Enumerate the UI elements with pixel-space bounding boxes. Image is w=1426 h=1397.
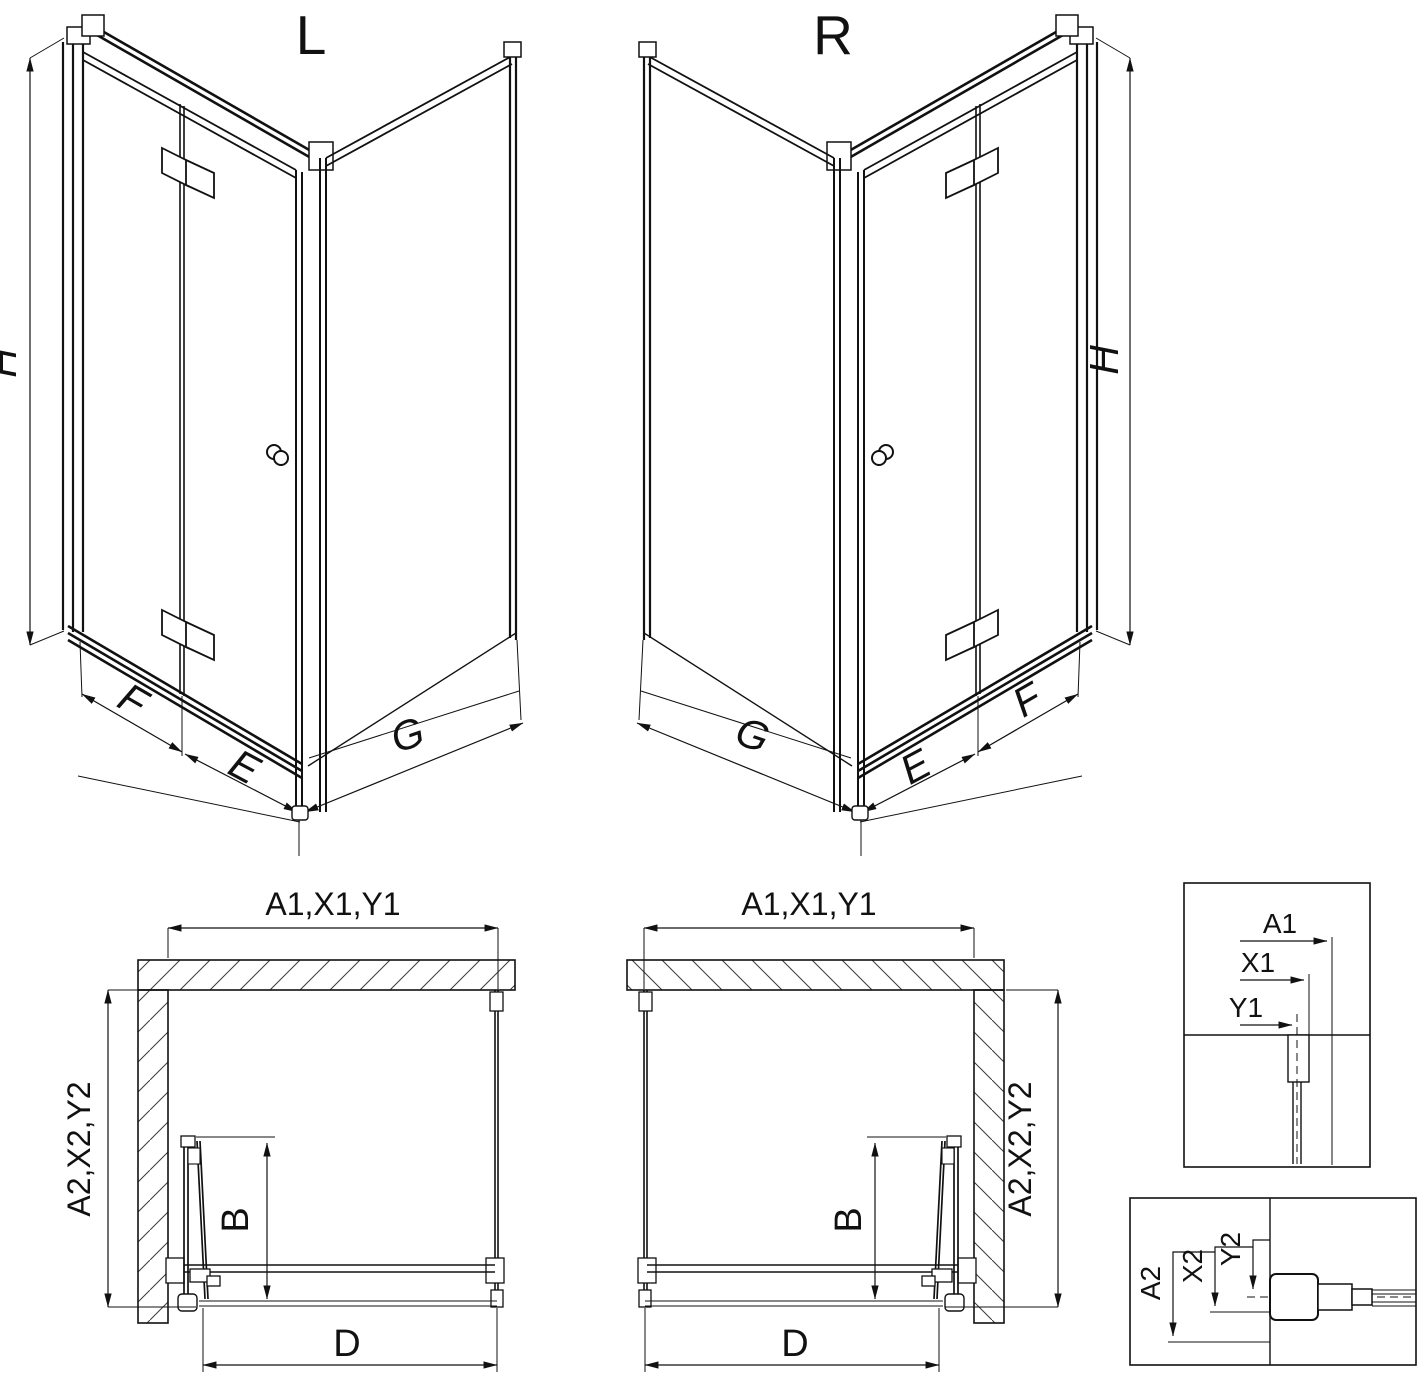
- plan-view-left: [138, 928, 515, 1372]
- plan-view-right: [627, 928, 1004, 1372]
- detail-box-bottom: [1130, 1198, 1416, 1365]
- diagram-canvas: L R H F E G H F E G A1,X1,Y1 A2,X2,Y2 B …: [0, 0, 1426, 1397]
- wall-profile-section: [1288, 1035, 1309, 1082]
- label-fold-dim-right-plan: B: [828, 1207, 870, 1232]
- label-depth-dim-right-plan: A2,X2,Y2: [1002, 1081, 1038, 1216]
- label-detail-x2: X2: [1177, 1249, 1208, 1283]
- label-fold-dim-left-plan: B: [215, 1207, 257, 1232]
- hinge-clamp: [1318, 1284, 1352, 1310]
- title-right-variant: R: [813, 4, 853, 66]
- label-detail-y2: Y2: [1215, 1232, 1246, 1266]
- label-depth-dim-left-plan: A2,X2,Y2: [61, 1081, 97, 1216]
- iso-view-left: [30, 15, 523, 856]
- label-height-right: H: [1081, 345, 1127, 375]
- label-detail-a1: A1: [1263, 908, 1297, 939]
- title-left-variant: L: [296, 4, 327, 66]
- label-entry-dim-right-plan: D: [781, 1323, 808, 1365]
- label-side-panel-right: G: [730, 708, 775, 762]
- iso-view-right: [637, 15, 1130, 856]
- label-side-panel-left: G: [385, 708, 430, 762]
- hinge-knuckle: [1352, 1289, 1372, 1305]
- label-detail-x1: X1: [1241, 947, 1275, 978]
- label-width-dim-right-plan: A1,X1,Y1: [741, 886, 876, 922]
- wall-profile-body: [1270, 1274, 1318, 1320]
- label-detail-y1: Y1: [1229, 992, 1263, 1023]
- label-detail-a2: A2: [1135, 1266, 1166, 1300]
- shower-enclosure-diagram: L R H F E G H F E G A1,X1,Y1 A2,X2,Y2 B …: [0, 0, 1426, 1397]
- label-entry-dim-left-plan: D: [333, 1323, 360, 1365]
- label-height-left: H: [0, 348, 25, 378]
- label-width-dim-left-plan: A1,X1,Y1: [265, 886, 400, 922]
